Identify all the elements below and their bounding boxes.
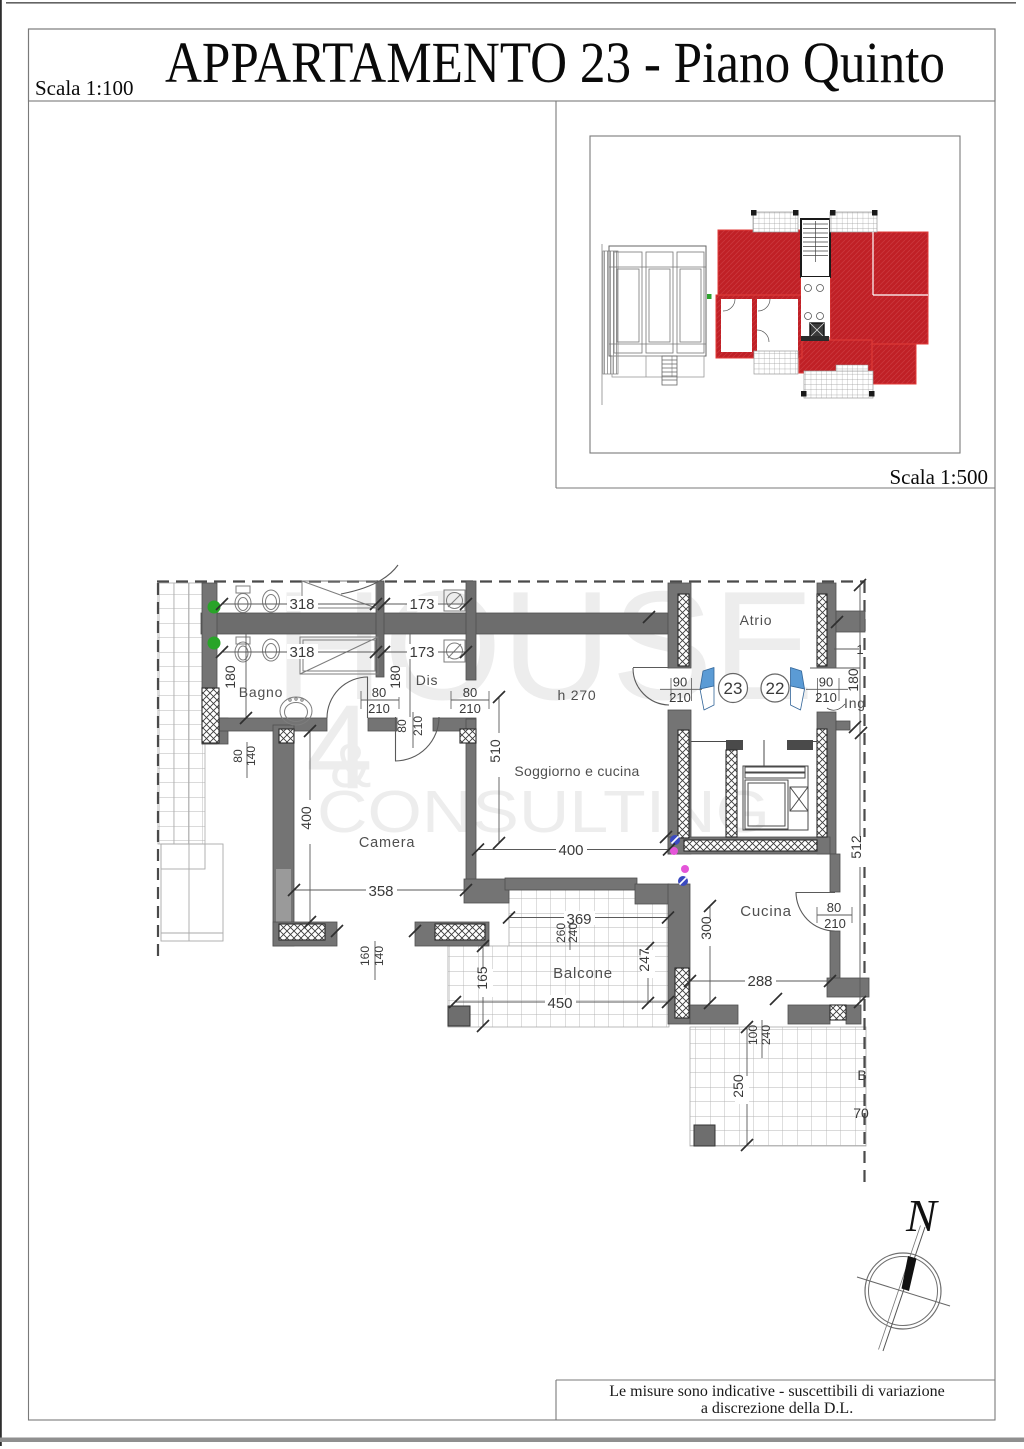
svg-text:90: 90	[673, 675, 687, 690]
svg-text:a discrezione della D.L.: a discrezione della D.L.	[701, 1400, 853, 1417]
svg-text:80: 80	[372, 685, 386, 700]
svg-text:Soggiorno e cucina: Soggiorno e cucina	[514, 763, 639, 779]
svg-text:318: 318	[289, 596, 314, 613]
svg-text:Bagno: Bagno	[239, 684, 283, 700]
svg-text:80: 80	[463, 685, 477, 700]
svg-text:210: 210	[459, 701, 481, 716]
svg-text:1: 1	[856, 642, 863, 657]
svg-text:240: 240	[759, 1025, 773, 1045]
svg-text:Ing: Ing	[844, 695, 866, 711]
svg-text:358: 358	[368, 883, 393, 900]
svg-text:70: 70	[853, 1105, 869, 1121]
svg-text:Atrio: Atrio	[740, 612, 773, 628]
svg-text:240: 240	[566, 923, 580, 943]
svg-text:510: 510	[487, 739, 503, 763]
svg-text:400: 400	[558, 842, 583, 859]
svg-text:210: 210	[368, 701, 390, 716]
svg-text:288: 288	[747, 973, 772, 990]
svg-text:173: 173	[409, 596, 434, 613]
svg-text:247: 247	[636, 948, 652, 972]
svg-text:160: 160	[358, 946, 372, 966]
svg-text:80: 80	[827, 900, 841, 915]
svg-text:210: 210	[411, 716, 425, 736]
svg-text:APPARTAMENTO 23 - Piano Quinto: APPARTAMENTO 23 - Piano Quinto	[165, 30, 945, 95]
svg-text:h 270: h 270	[557, 687, 596, 703]
svg-text:80: 80	[231, 749, 245, 763]
svg-text:Le misure sono indicative - su: Le misure sono indicative - suscettibili…	[609, 1383, 944, 1400]
svg-text:140: 140	[244, 746, 258, 766]
svg-text:23: 23	[724, 679, 743, 698]
svg-text:318: 318	[289, 644, 314, 661]
svg-text:210: 210	[815, 690, 837, 705]
svg-text:Dis: Dis	[416, 672, 439, 688]
svg-text:90: 90	[819, 675, 833, 690]
svg-text:B: B	[857, 1067, 866, 1083]
svg-text:180: 180	[845, 668, 861, 692]
svg-text:250: 250	[730, 1074, 746, 1098]
svg-text:Camera: Camera	[359, 835, 416, 851]
svg-text:80: 80	[395, 719, 409, 733]
svg-text:512: 512	[848, 835, 864, 859]
svg-text:Scala 1:100: Scala 1:100	[35, 76, 134, 100]
svg-text:165: 165	[474, 966, 490, 990]
svg-text:450: 450	[547, 995, 572, 1012]
svg-text:100: 100	[746, 1025, 760, 1045]
svg-text:210: 210	[669, 690, 691, 705]
svg-text:22: 22	[766, 679, 785, 698]
svg-text:Balcone: Balcone	[553, 965, 613, 982]
svg-text:140: 140	[372, 946, 386, 966]
svg-text:Cucina: Cucina	[740, 903, 792, 920]
svg-text:173: 173	[409, 644, 434, 661]
svg-text:N: N	[905, 1190, 939, 1241]
svg-text:Scala 1:500: Scala 1:500	[889, 465, 988, 489]
svg-text:300: 300	[698, 916, 714, 940]
svg-text:210: 210	[824, 916, 846, 931]
svg-text:400: 400	[298, 806, 314, 830]
svg-text:180: 180	[222, 665, 238, 689]
svg-text:180: 180	[387, 665, 403, 689]
